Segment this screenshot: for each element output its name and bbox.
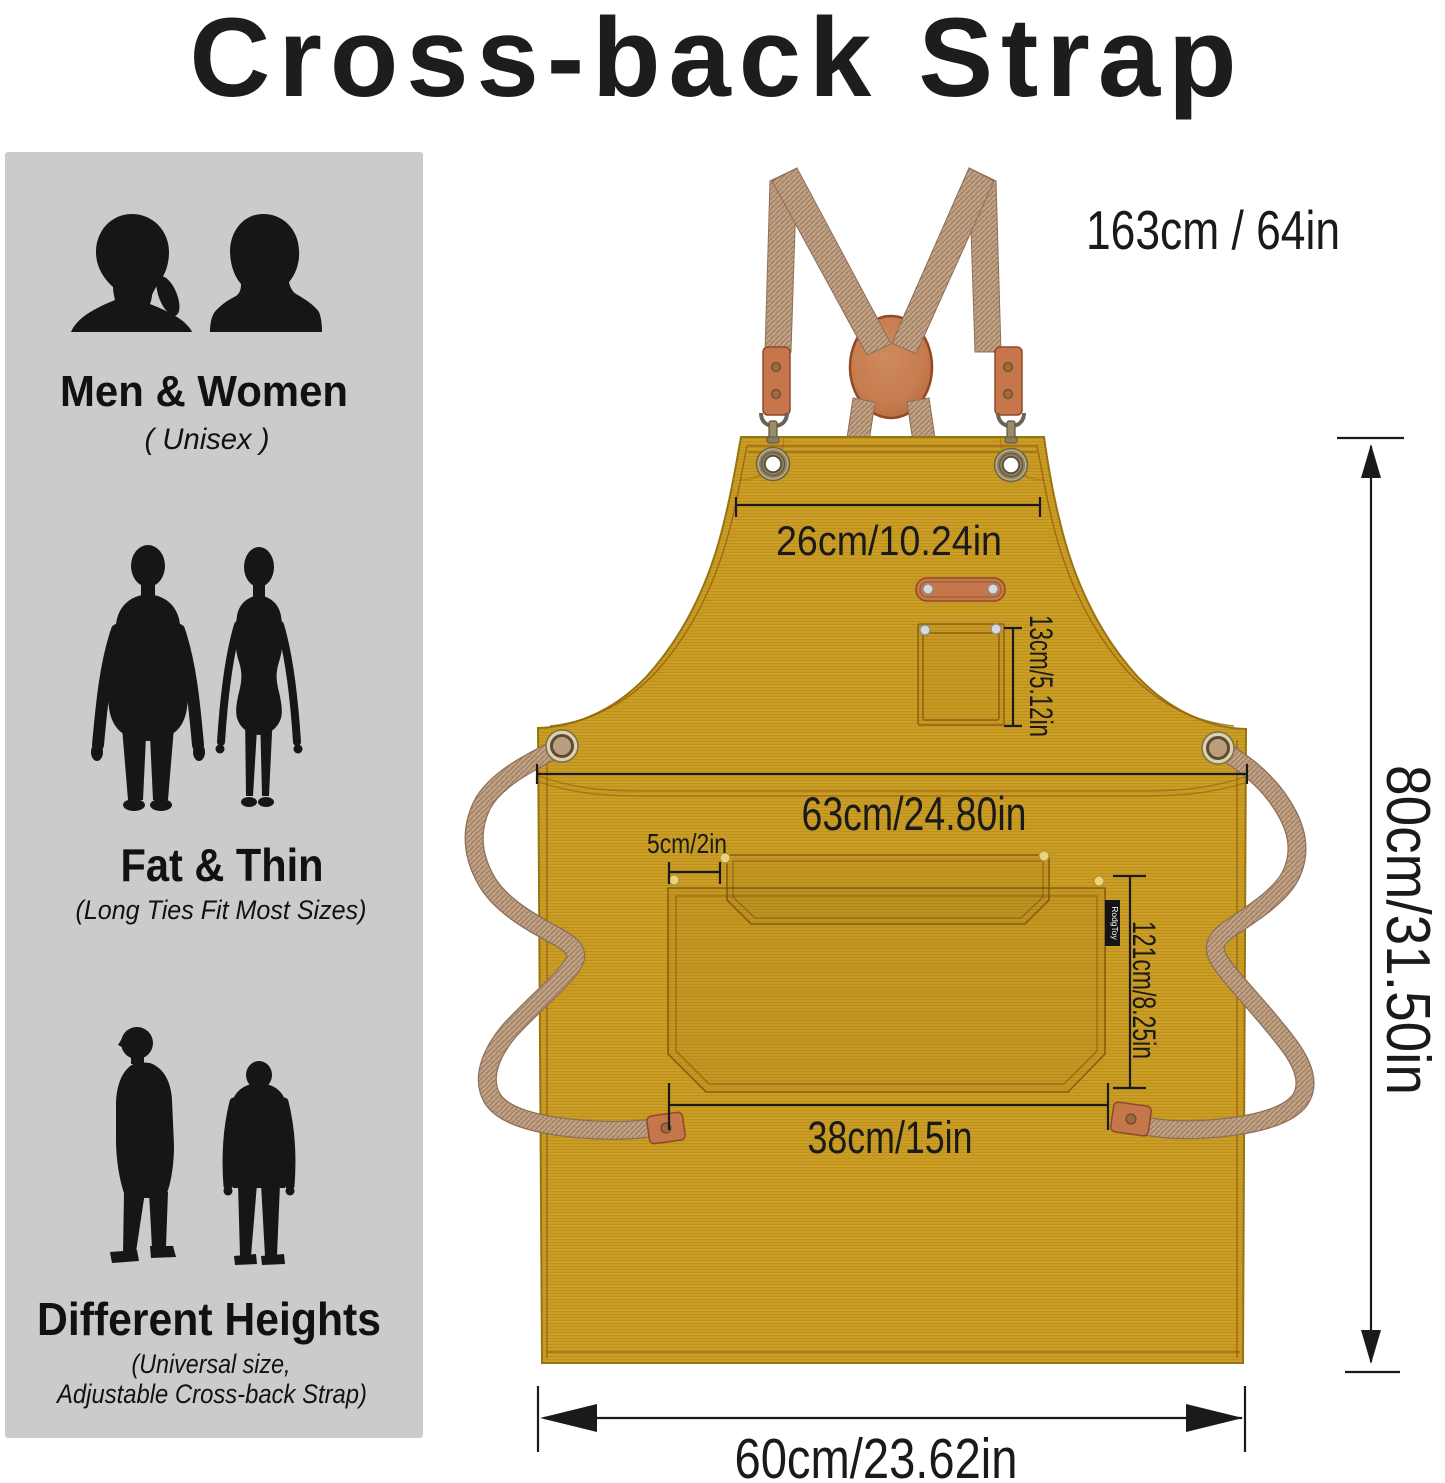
svg-text:(Long Ties Fit Most Sizes): (Long Ties Fit Most Sizes): [76, 895, 367, 925]
svg-text:RodgToy: RodgToy: [1110, 906, 1120, 940]
svg-text:60cm/23.62in: 60cm/23.62in: [735, 1427, 1018, 1483]
svg-text:13cm/5.12in: 13cm/5.12in: [1023, 615, 1059, 737]
svg-text:Fat & Thin: Fat & Thin: [121, 839, 324, 891]
svg-text:( Unisex ): ( Unisex ): [145, 423, 270, 456]
svg-text:38cm/15in: 38cm/15in: [808, 1112, 973, 1163]
svg-text:Cross-back Strap: Cross-back Strap: [190, 0, 1237, 120]
svg-text:121cm/8.25in: 121cm/8.25in: [1126, 921, 1162, 1059]
svg-text:163cm / 64in: 163cm / 64in: [1086, 199, 1340, 261]
svg-text:Adjustable Cross-back Strap): Adjustable Cross-back Strap): [55, 1379, 367, 1409]
svg-text:63cm/24.80in: 63cm/24.80in: [802, 787, 1027, 840]
svg-text:26cm/10.24in: 26cm/10.24in: [776, 517, 1002, 564]
svg-text:(Universal size,: (Universal size,: [132, 1349, 291, 1379]
svg-text:80cm/31.50in: 80cm/31.50in: [1373, 765, 1442, 1095]
svg-text:Different Heights: Different Heights: [37, 1293, 381, 1345]
svg-text:5cm/2in: 5cm/2in: [647, 828, 727, 859]
svg-text:Men & Women: Men & Women: [60, 367, 348, 416]
